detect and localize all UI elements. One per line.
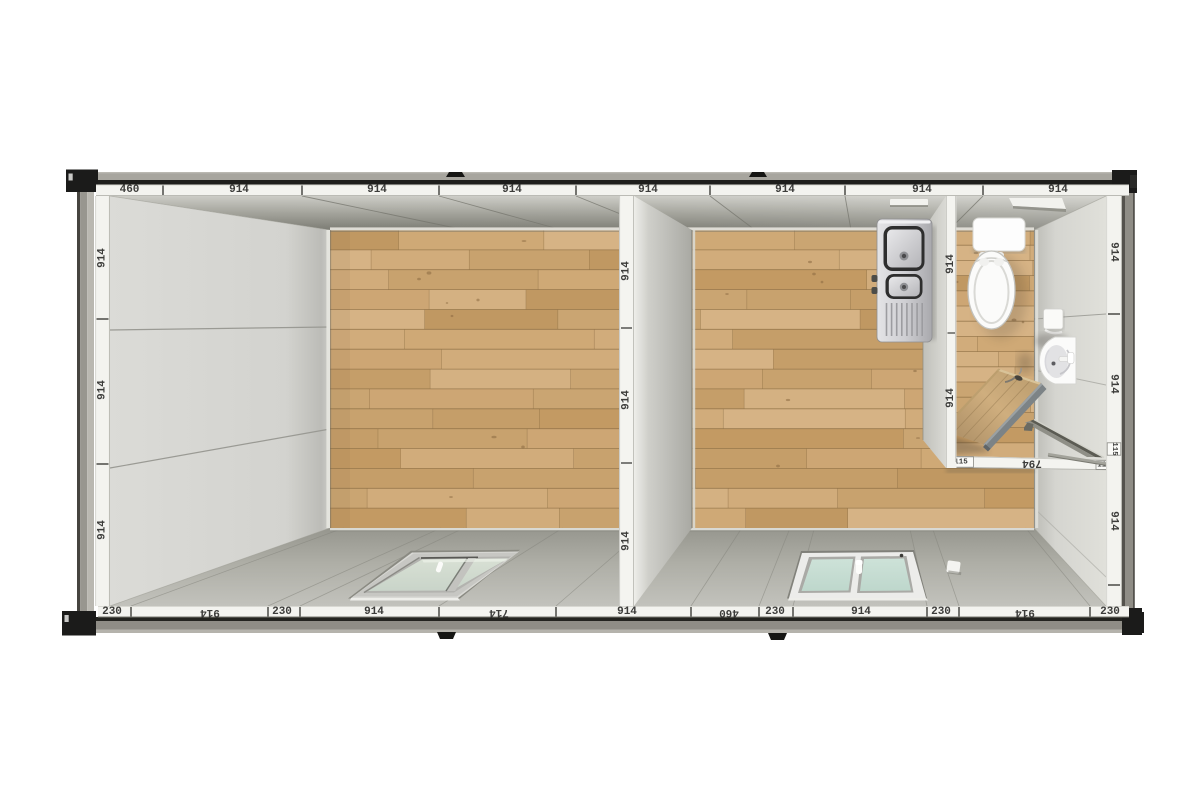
svg-text:914: 914: [367, 184, 387, 196]
svg-text:230: 230: [1100, 606, 1120, 618]
svg-text:230: 230: [931, 606, 951, 618]
svg-text:914: 914: [364, 606, 384, 618]
svg-text:914: 914: [851, 606, 871, 618]
svg-text:115: 115: [1110, 442, 1118, 456]
svg-text:914: 914: [229, 184, 249, 196]
svg-text:230: 230: [272, 606, 292, 618]
svg-text:914: 914: [1108, 242, 1120, 262]
svg-text:914: 914: [621, 261, 633, 281]
svg-text:230: 230: [102, 606, 122, 618]
svg-text:914: 914: [97, 520, 109, 540]
svg-text:914: 914: [1108, 511, 1120, 531]
svg-text:460: 460: [719, 606, 739, 618]
svg-text:914: 914: [97, 380, 109, 400]
svg-text:914: 914: [97, 248, 109, 268]
svg-text:914: 914: [502, 184, 522, 196]
svg-text:914: 914: [200, 606, 220, 618]
svg-text:914: 914: [621, 531, 633, 551]
svg-text:714: 714: [489, 606, 509, 618]
svg-text:914: 914: [945, 388, 957, 408]
svg-text:794: 794: [1022, 457, 1042, 469]
svg-text:914: 914: [1048, 184, 1068, 196]
svg-text:914: 914: [638, 184, 658, 196]
svg-text:914: 914: [621, 390, 633, 410]
svg-text:914: 914: [617, 606, 637, 618]
svg-text:914: 914: [1108, 374, 1120, 394]
svg-text:914: 914: [912, 184, 932, 196]
svg-text:460: 460: [120, 184, 140, 196]
svg-text:914: 914: [1015, 606, 1035, 618]
svg-text:914: 914: [775, 184, 795, 196]
svg-text:914: 914: [945, 254, 957, 274]
svg-text:230: 230: [765, 606, 785, 618]
